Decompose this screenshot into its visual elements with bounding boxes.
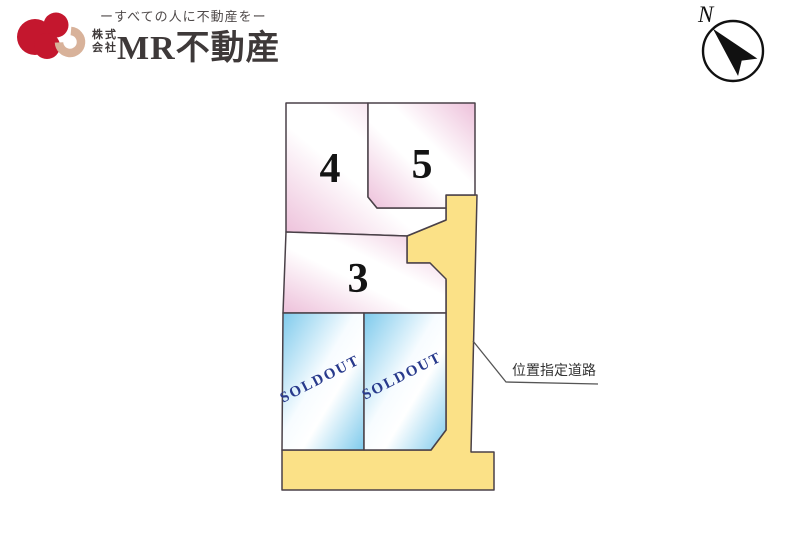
lot-3-label: 3 <box>348 256 369 302</box>
company-logo-icon <box>8 6 103 76</box>
plot-diagram: 453SOLDOUTSOLDOUT 位置指定道路 <box>0 0 800 545</box>
company-prefix-line2: 会社 <box>92 42 118 55</box>
lot-5-label: 5 <box>412 142 433 188</box>
company-prefix: 株式 会社 <box>92 29 118 54</box>
compass-north-label: N <box>697 2 715 27</box>
company-prefix-line1: 株式 <box>92 29 118 42</box>
road-label: 位置指定道路 <box>512 362 596 378</box>
company-name: MR不動産 <box>117 20 281 69</box>
lot-4-label: 4 <box>320 146 341 192</box>
compass-icon: N <box>692 0 777 95</box>
